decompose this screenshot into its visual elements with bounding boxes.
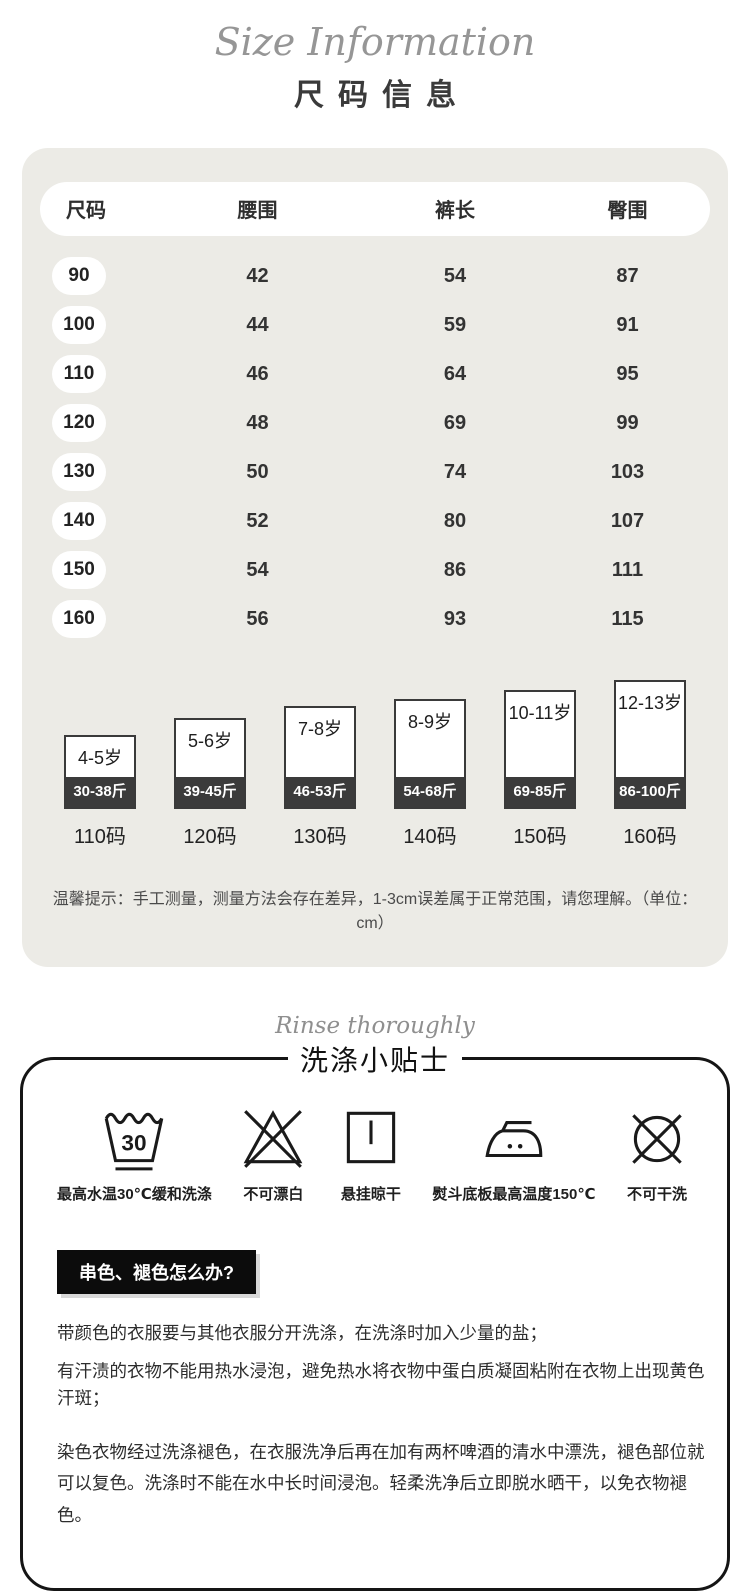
care-paragraph: 有汗渍的衣物不能用热水浸泡，避免热水将衣物中蛋白质凝固粘附在衣物上出现黄色汗斑； bbox=[57, 1358, 709, 1412]
size-badge: 90 bbox=[52, 257, 106, 295]
weight-range: 39-45斤 bbox=[176, 777, 244, 807]
size-table-body: 90 42 54 87 100 44 59 91 bbox=[40, 252, 710, 644]
age-size-step: 4-5岁 30-38斤 110码 bbox=[64, 735, 136, 849]
age-size-step: 12-13岁 86-100斤 160码 bbox=[614, 680, 686, 849]
weight-range: 30-38斤 bbox=[66, 777, 134, 807]
length-value: 93 bbox=[365, 608, 545, 631]
svg-text:30: 30 bbox=[122, 1131, 147, 1156]
weight-range: 46-53斤 bbox=[286, 777, 354, 807]
size-code-label: 130码 bbox=[293, 820, 346, 849]
size-badge: 140 bbox=[52, 502, 106, 540]
wash-tips-box: 洗涤小贴士 30 最高水温30℃缓和洗涤 bbox=[20, 1057, 730, 1591]
page-header: Size Information 尺码信息 bbox=[0, 0, 750, 114]
weight-range: 86-100斤 bbox=[616, 777, 684, 807]
hip-value: 107 bbox=[545, 510, 710, 533]
care-icon-label: 悬挂晾干 bbox=[341, 1183, 401, 1204]
waist-value: 42 bbox=[150, 265, 365, 288]
age-range: 10-11岁 bbox=[506, 692, 574, 725]
age-weight-box: 7-8岁 46-53斤 bbox=[284, 706, 356, 809]
column-header: 腰围 bbox=[150, 194, 365, 223]
size-badge: 120 bbox=[52, 404, 106, 442]
weight-range: 54-68斤 bbox=[396, 777, 464, 807]
no-dryclean-icon bbox=[621, 1102, 693, 1174]
care-icon-label: 不可漂白 bbox=[243, 1183, 303, 1204]
table-row: 90 42 54 87 bbox=[40, 252, 710, 301]
length-value: 64 bbox=[365, 363, 545, 386]
care-icon-item: 30 最高水温30℃缓和洗涤 bbox=[57, 1102, 212, 1204]
size-badge: 100 bbox=[52, 306, 106, 344]
table-row: 160 56 93 115 bbox=[40, 595, 710, 644]
care-paragraph: 染色衣物经过洗涤褪色，在衣服洗净后再在加有两杯啤酒的清水中漂洗，褪色部位就可以复… bbox=[57, 1437, 709, 1532]
size-code-label: 110码 bbox=[74, 820, 126, 849]
size-code-label: 160码 bbox=[623, 820, 676, 849]
hip-value: 87 bbox=[545, 265, 710, 288]
age-size-step: 5-6岁 39-45斤 120码 bbox=[174, 718, 246, 849]
waist-value: 52 bbox=[150, 510, 365, 533]
size-table-panel: 尺码 腰围 裤长 臀围 90 42 54 87 bbox=[22, 148, 728, 967]
table-row: 110 46 64 95 bbox=[40, 350, 710, 399]
weight-range: 69-85斤 bbox=[506, 777, 574, 807]
care-paragraph: 带颜色的衣服要与其他衣服分开洗涤，在洗涤时加入少量的盐； bbox=[57, 1320, 709, 1347]
script-title-rinse: Rinse thoroughly bbox=[0, 1013, 750, 1041]
size-code-label: 150码 bbox=[513, 820, 566, 849]
column-header: 臀围 bbox=[545, 194, 710, 223]
hang-dry-icon bbox=[335, 1102, 407, 1174]
care-icon-label: 不可干洗 bbox=[627, 1183, 687, 1204]
wash-tips-title: 洗涤小贴士 bbox=[288, 1039, 462, 1079]
wash-tips-section: Rinse thoroughly 洗涤小贴士 30 最高水温30℃缓和洗涤 bbox=[0, 1013, 750, 1591]
size-code-label: 120码 bbox=[183, 820, 236, 849]
size-badge: 150 bbox=[52, 551, 106, 589]
care-instructions: 带颜色的衣服要与其他衣服分开洗涤，在洗涤时加入少量的盐； 有汗渍的衣物不能用热水… bbox=[57, 1320, 715, 1531]
hip-value: 103 bbox=[545, 461, 710, 484]
age-size-step: 7-8岁 46-53斤 130码 bbox=[284, 706, 356, 849]
care-icon-item: 不可干洗 bbox=[621, 1102, 693, 1204]
care-icon-item: 不可漂白 bbox=[237, 1102, 309, 1204]
script-title-english: Size Information bbox=[0, 20, 750, 66]
size-badge: 160 bbox=[52, 600, 106, 638]
hip-value: 95 bbox=[545, 363, 710, 386]
hip-value: 91 bbox=[545, 314, 710, 337]
length-value: 74 bbox=[365, 461, 545, 484]
age-weight-box: 8-9岁 54-68斤 bbox=[394, 699, 466, 809]
age-range: 8-9岁 bbox=[396, 701, 464, 734]
care-icon-label: 熨斗底板最高温度150℃ bbox=[432, 1183, 595, 1204]
fading-question-label: 串色、褪色怎么办? bbox=[57, 1250, 256, 1294]
care-icon-label: 最高水温30℃缓和洗涤 bbox=[57, 1183, 212, 1204]
age-range: 12-13岁 bbox=[616, 682, 684, 715]
table-row: 140 52 80 107 bbox=[40, 497, 710, 546]
page-title: 尺码信息 bbox=[0, 70, 750, 114]
no-bleach-icon bbox=[237, 1102, 309, 1174]
age-weight-box: 10-11岁 69-85斤 bbox=[504, 690, 576, 809]
wash-30c-icon: 30 bbox=[98, 1102, 170, 1174]
age-range: 5-6岁 bbox=[176, 720, 244, 753]
care-icon-item: 悬挂晾干 bbox=[335, 1102, 407, 1204]
age-weight-box: 5-6岁 39-45斤 bbox=[174, 718, 246, 809]
column-header: 裤长 bbox=[365, 194, 545, 223]
age-weight-box: 12-13岁 86-100斤 bbox=[614, 680, 686, 809]
size-badge: 130 bbox=[52, 453, 106, 491]
age-size-step: 10-11岁 69-85斤 150码 bbox=[504, 690, 576, 849]
waist-value: 48 bbox=[150, 412, 365, 435]
length-value: 54 bbox=[365, 265, 545, 288]
table-row: 100 44 59 91 bbox=[40, 301, 710, 350]
waist-value: 44 bbox=[150, 314, 365, 337]
age-size-steps: 4-5岁 30-38斤 110码 5-6岁 39-45斤 120码 7-8岁 bbox=[40, 680, 710, 849]
age-size-step: 8-9岁 54-68斤 140码 bbox=[394, 699, 466, 849]
size-code-label: 140码 bbox=[403, 820, 456, 849]
size-table-header-row: 尺码 腰围 裤长 臀围 bbox=[40, 182, 710, 236]
measurement-note: 温馨提示：手工测量，测量方法会存在差异，1-3cm误差属于正常范围，请您理解。（… bbox=[40, 885, 710, 933]
waist-value: 50 bbox=[150, 461, 365, 484]
size-info-page: Size Information 尺码信息 尺码 腰围 裤长 臀围 90 42 bbox=[0, 0, 750, 1591]
size-badge: 110 bbox=[52, 355, 106, 393]
waist-value: 56 bbox=[150, 608, 365, 631]
waist-value: 46 bbox=[150, 363, 365, 386]
age-weight-box: 4-5岁 30-38斤 bbox=[64, 735, 136, 809]
length-value: 69 bbox=[365, 412, 545, 435]
age-range: 4-5岁 bbox=[66, 737, 134, 770]
column-header: 尺码 bbox=[40, 194, 150, 223]
length-value: 86 bbox=[365, 559, 545, 582]
hip-value: 115 bbox=[545, 608, 710, 631]
waist-value: 54 bbox=[150, 559, 365, 582]
age-range: 7-8岁 bbox=[286, 708, 354, 741]
table-row: 150 54 86 111 bbox=[40, 546, 710, 595]
hip-value: 99 bbox=[545, 412, 710, 435]
length-value: 59 bbox=[365, 314, 545, 337]
table-row: 120 48 69 99 bbox=[40, 399, 710, 448]
iron-150c-icon bbox=[478, 1102, 550, 1174]
hip-value: 111 bbox=[545, 559, 710, 582]
table-row: 130 50 74 103 bbox=[40, 448, 710, 497]
care-icon-item: 熨斗底板最高温度150℃ bbox=[432, 1102, 595, 1204]
care-icons-row: 30 最高水温30℃缓和洗涤 不可漂白 bbox=[57, 1102, 715, 1204]
length-value: 80 bbox=[365, 510, 545, 533]
